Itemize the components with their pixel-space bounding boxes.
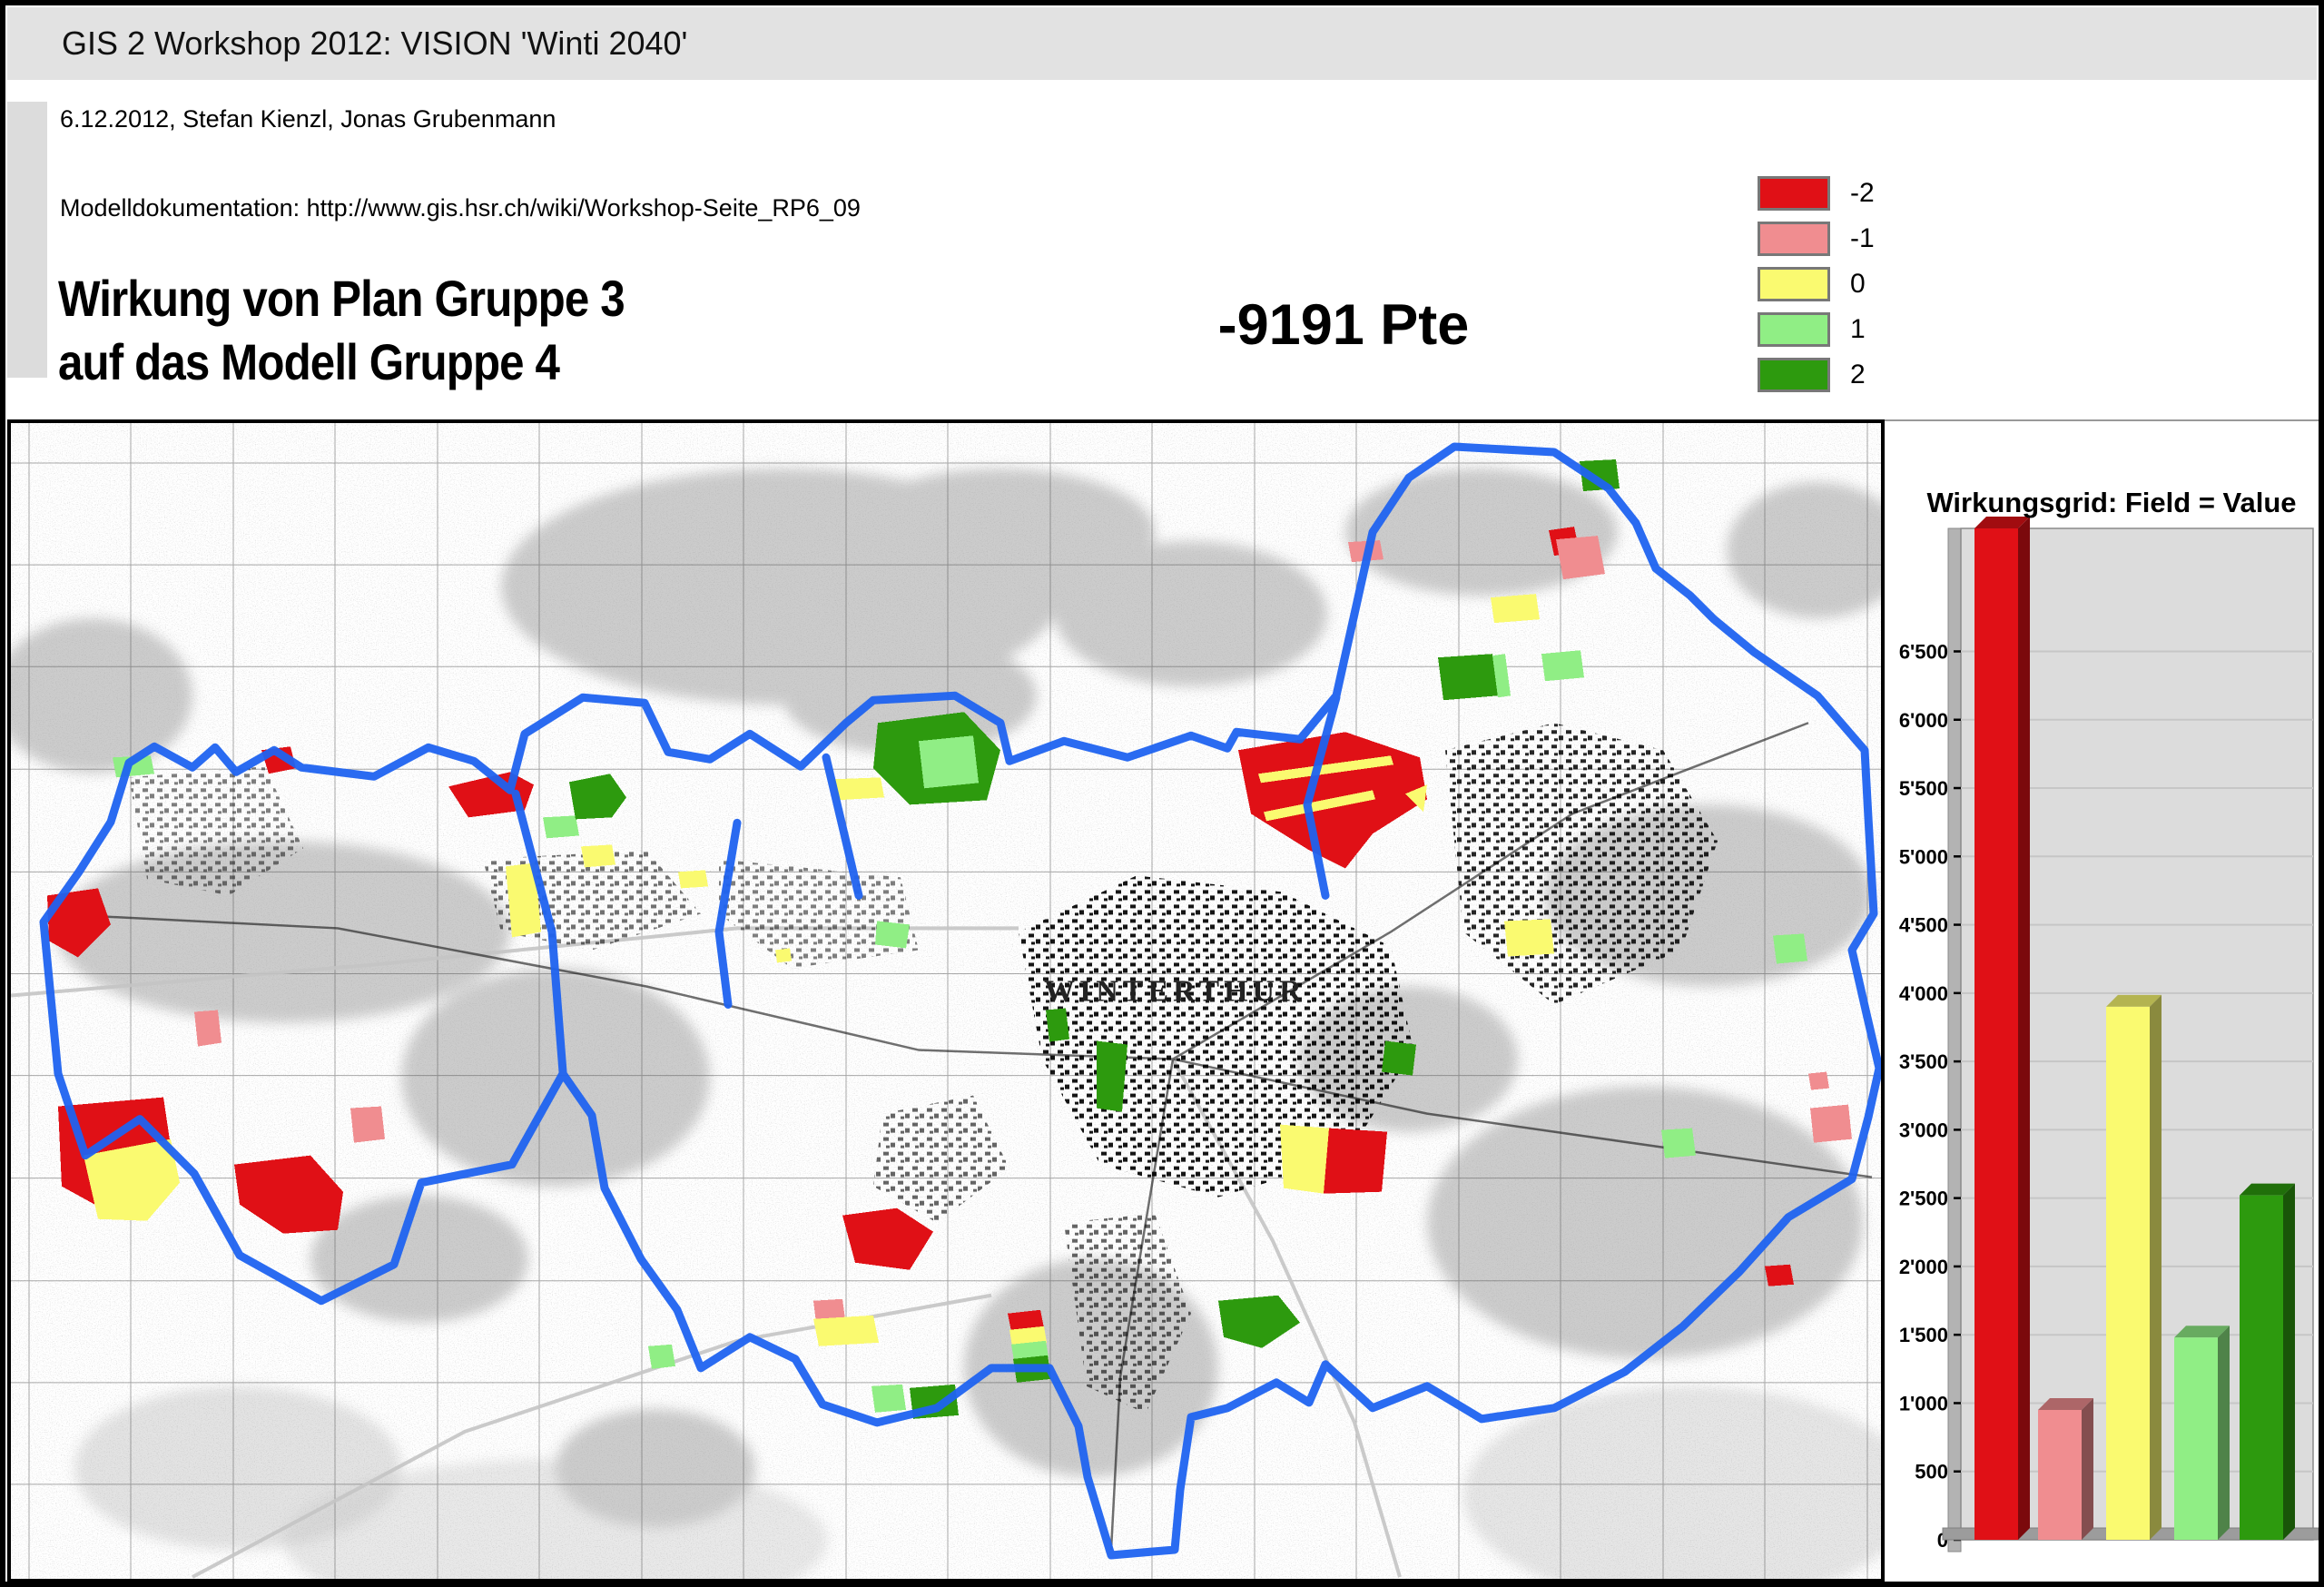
header-bar: GIS 2 Workshop 2012: VISION 'Winti 2040' — [7, 7, 2317, 80]
svg-text:3'000: 3'000 — [1899, 1119, 1948, 1141]
page-title: GIS 2 Workshop 2012: VISION 'Winti 2040' — [62, 7, 687, 80]
author-line: 6.12.2012, Stefan Kienzl, Jonas Grubenma… — [60, 105, 556, 133]
main-title-line1: Wirkung von Plan Gruppe 3 — [58, 267, 625, 330]
score-value: -9191 Pte — [1189, 292, 1498, 358]
legend-label: 0 — [1850, 269, 1866, 300]
map-panel: WINTERTHUR — [7, 419, 1885, 1582]
svg-text:6'500: 6'500 — [1899, 640, 1948, 663]
main-title-line2: auf das Modell Gruppe 4 — [58, 330, 625, 394]
legend-label: -1 — [1850, 223, 1875, 254]
legend-swatch-plus2 — [1758, 358, 1830, 392]
chart-title: Wirkungsgrid: Field = Value — [1926, 487, 2296, 518]
legend-row: -1 — [1758, 222, 1875, 256]
svg-text:6'000: 6'000 — [1899, 709, 1948, 732]
legend-row: 2 — [1758, 358, 1875, 392]
legend-label: -2 — [1850, 178, 1875, 209]
map-canvas: WINTERTHUR — [11, 423, 1881, 1579]
legend-label: 1 — [1850, 314, 1866, 345]
legend-swatch-zero — [1758, 267, 1830, 301]
svg-text:2'000: 2'000 — [1899, 1256, 1948, 1278]
svg-text:1'500: 1'500 — [1899, 1324, 1948, 1346]
chart-panel: 05001'0001'5002'0002'5003'0003'5004'0004… — [1885, 419, 2319, 1582]
legend: -2 -1 0 1 2 — [1758, 176, 1875, 403]
legend-row: 0 — [1758, 267, 1875, 301]
legend-label: 2 — [1850, 360, 1866, 390]
impact-bar-chart: 05001'0001'5002'0002'5003'0003'5004'0004… — [1885, 421, 2319, 1582]
gis-poster-page: GIS 2 Workshop 2012: VISION 'Winti 2040'… — [0, 0, 2324, 1587]
svg-text:4'500: 4'500 — [1899, 914, 1948, 937]
svg-text:5'000: 5'000 — [1899, 845, 1948, 868]
left-accent-strip — [7, 102, 47, 378]
svg-text:500: 500 — [1915, 1461, 1948, 1483]
svg-text:1'000: 1'000 — [1899, 1392, 1948, 1414]
main-title: Wirkung von Plan Gruppe 3 auf das Modell… — [58, 267, 625, 394]
legend-swatch-plus1 — [1758, 312, 1830, 347]
svg-text:2'500: 2'500 — [1899, 1188, 1948, 1210]
city-label: WINTERTHUR — [1044, 974, 1306, 1008]
svg-text:5'500: 5'500 — [1899, 777, 1948, 800]
legend-swatch-minus1 — [1758, 222, 1830, 256]
svg-text:3'500: 3'500 — [1899, 1050, 1948, 1073]
legend-swatch-minus2 — [1758, 176, 1830, 211]
documentation-link-text: Modelldokumentation: http://www.gis.hsr.… — [60, 194, 861, 222]
legend-row: 1 — [1758, 312, 1875, 347]
svg-text:4'000: 4'000 — [1899, 982, 1948, 1005]
legend-row: -2 — [1758, 176, 1875, 211]
